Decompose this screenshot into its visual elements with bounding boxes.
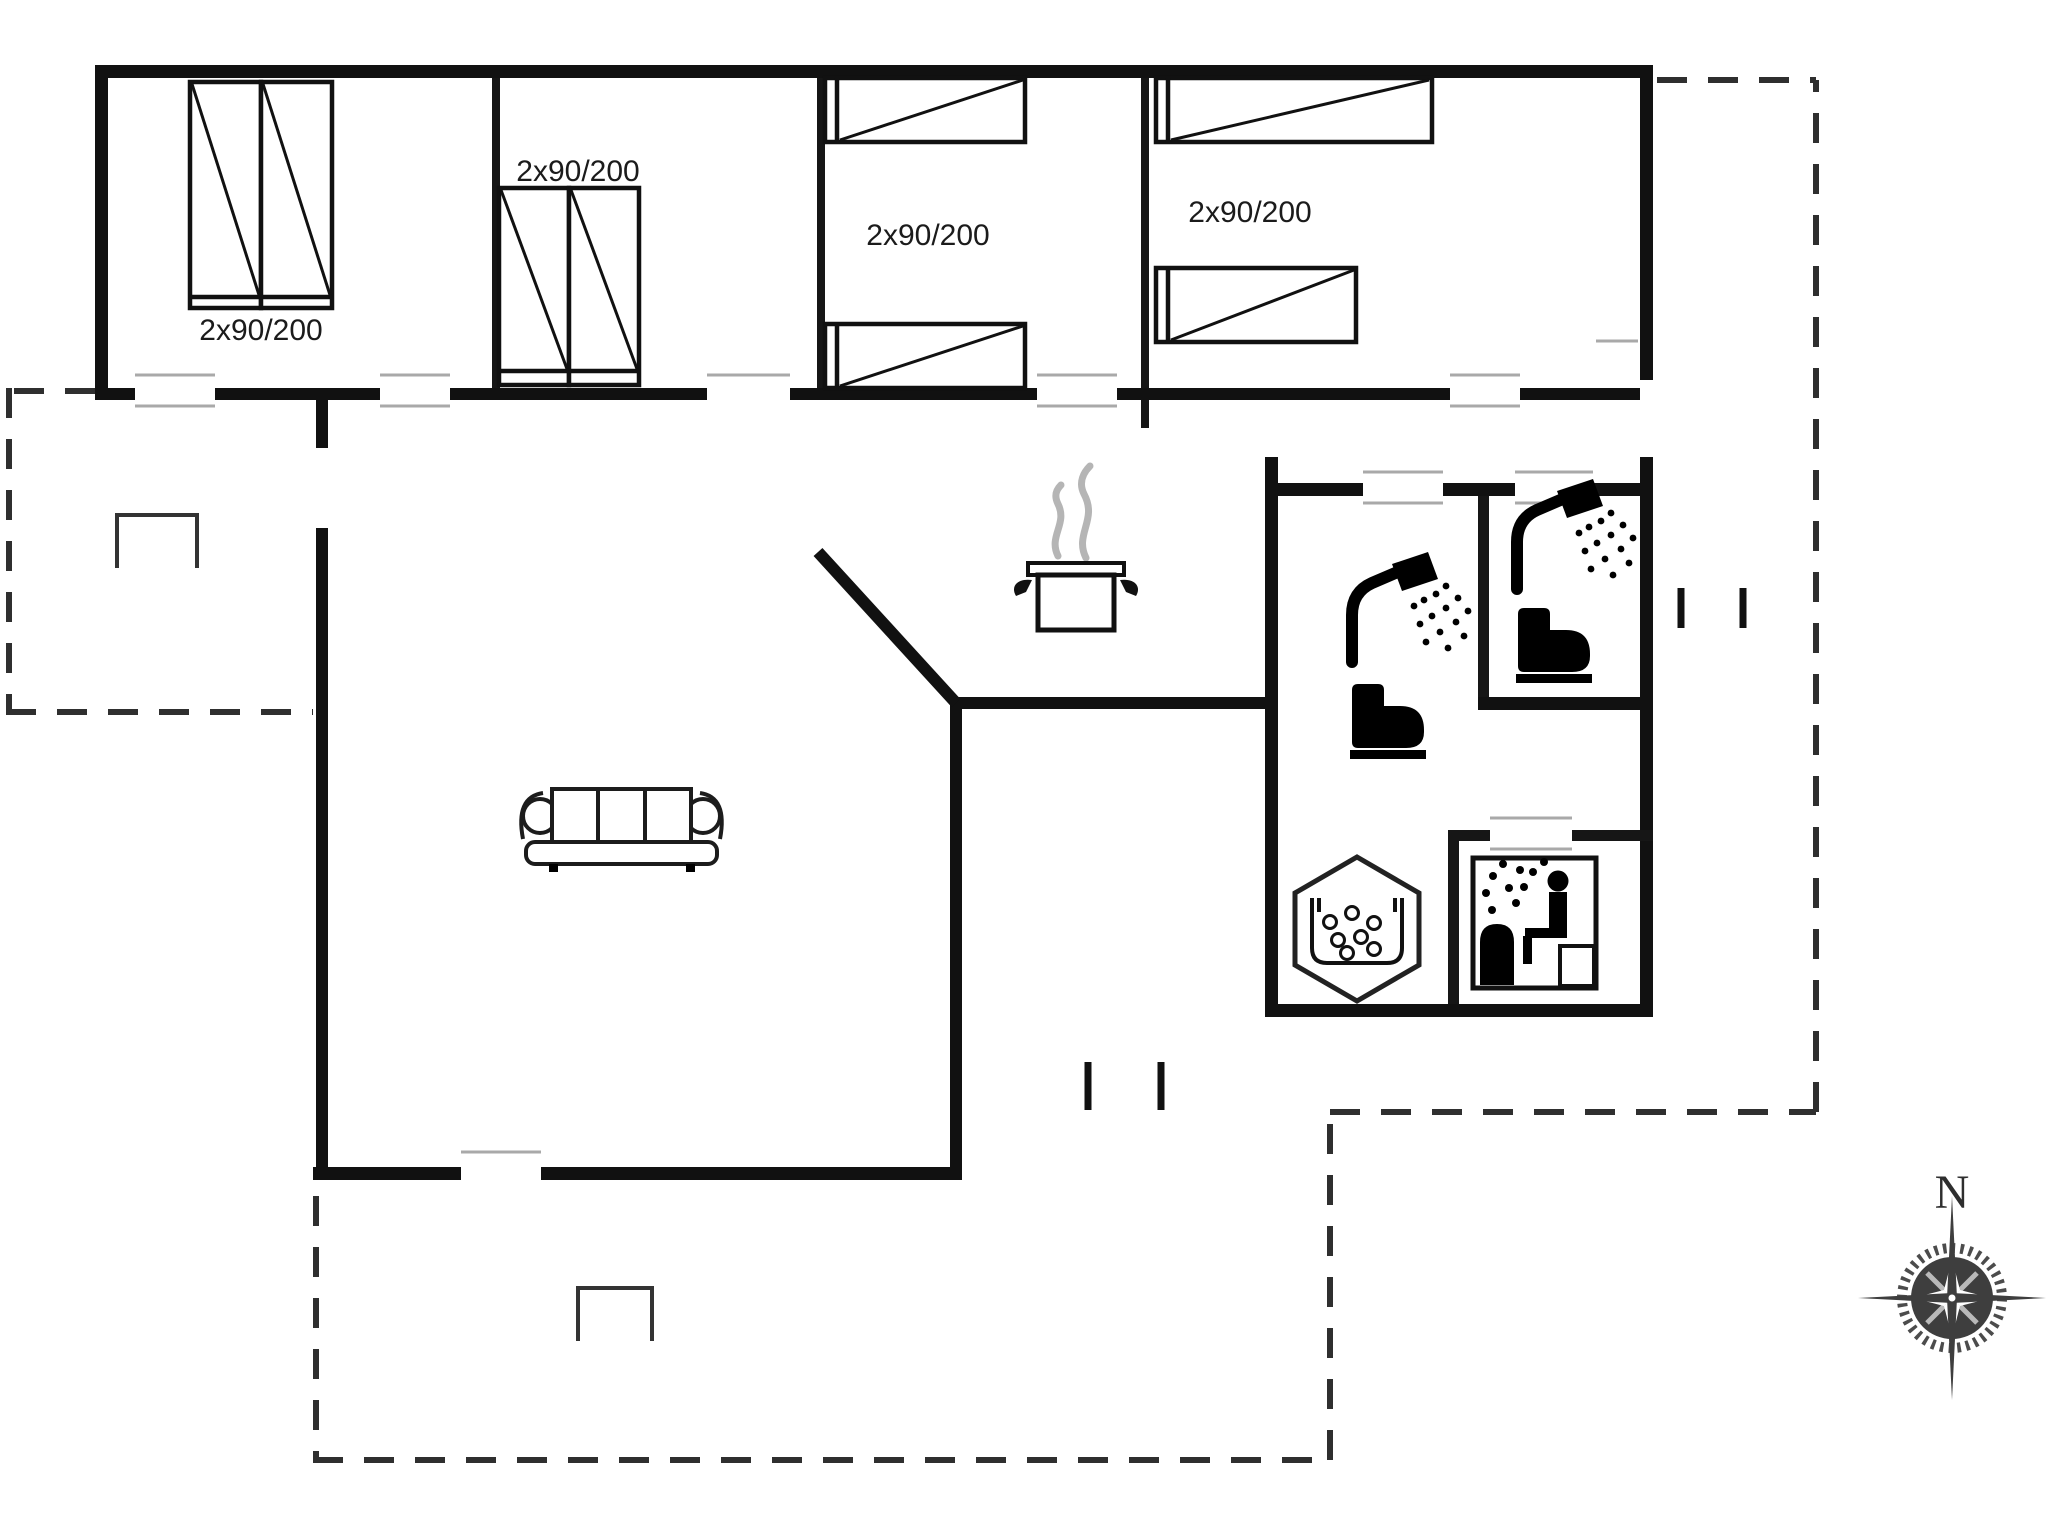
stove-icon (1014, 466, 1138, 630)
wall-living-right (950, 700, 962, 1180)
whirlpool-icon (1295, 857, 1419, 1001)
wall-left (95, 65, 108, 400)
wall-living-bottom (313, 1167, 461, 1180)
wall-bedroom3-4 (1141, 78, 1149, 388)
floor-plan: 2x90/200 2x90/200 2x90/200 2x90/200 (0, 0, 2048, 1536)
wall-bath2-bottom (1478, 697, 1653, 710)
toilet-icon (1350, 684, 1426, 759)
wall-stub-hall (1141, 400, 1149, 428)
wall-kitchen (950, 697, 1278, 709)
wall-sauna-left (1448, 830, 1459, 1004)
grill-icon (117, 515, 197, 568)
shower-icon (1352, 552, 1471, 662)
bed-size-label: 2x90/200 (866, 219, 989, 252)
floor-plan-drawing: 2x90/200 2x90/200 2x90/200 2x90/200 (0, 0, 2048, 1536)
wall-bath-top (1265, 483, 1363, 496)
sofa-icon (521, 789, 722, 872)
toilet-icon (1516, 608, 1592, 683)
compass-rose-icon (1858, 1196, 2046, 1400)
north-label: N (1935, 1166, 1970, 1219)
wall-living-left (316, 528, 328, 1180)
wall-bedrooms-bottom (95, 388, 135, 400)
wall-bath-bottom (1265, 1004, 1653, 1017)
wall-bath-left (1265, 457, 1278, 1017)
wall-diagonal (818, 552, 956, 703)
bedroom-2-beds (499, 188, 639, 385)
bed-size-label: 2x90/200 (199, 314, 322, 347)
bed-size-label: 2x90/200 (516, 155, 639, 188)
bed-size-label: 2x90/200 (1188, 196, 1311, 229)
bedroom-1-beds (190, 82, 332, 308)
wall-right-upper (1640, 65, 1653, 380)
grill-icon (578, 1288, 652, 1341)
wall-bath-divider (1478, 496, 1489, 710)
wall-right-lower (1640, 457, 1653, 1017)
sauna-icon (1473, 858, 1596, 988)
door-openings (135, 375, 1593, 1152)
wall-living-left-stub (316, 398, 328, 448)
